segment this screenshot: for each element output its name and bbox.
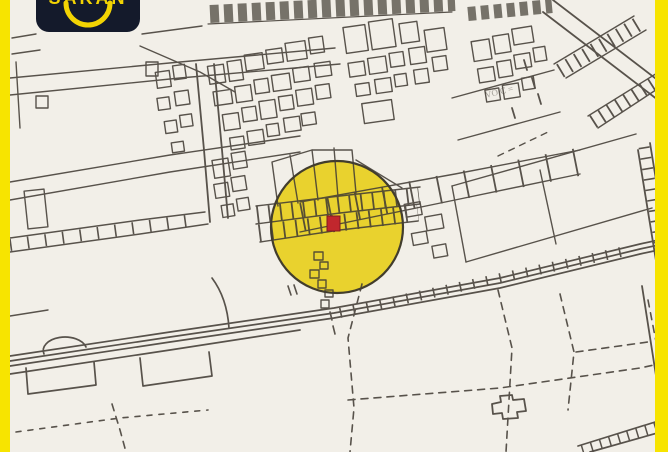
plot-marker[interactable] (327, 216, 340, 231)
brand-logo: SAKAN (36, 0, 140, 32)
left-frame-bar (0, 0, 10, 452)
listing-map-screenshot: VO C = SAKAN (0, 0, 668, 452)
right-frame-bar (655, 0, 668, 452)
brand-logo-wordmark: SAKAN (48, 0, 127, 8)
map-canvas[interactable]: VO C = SAKAN (0, 0, 668, 452)
